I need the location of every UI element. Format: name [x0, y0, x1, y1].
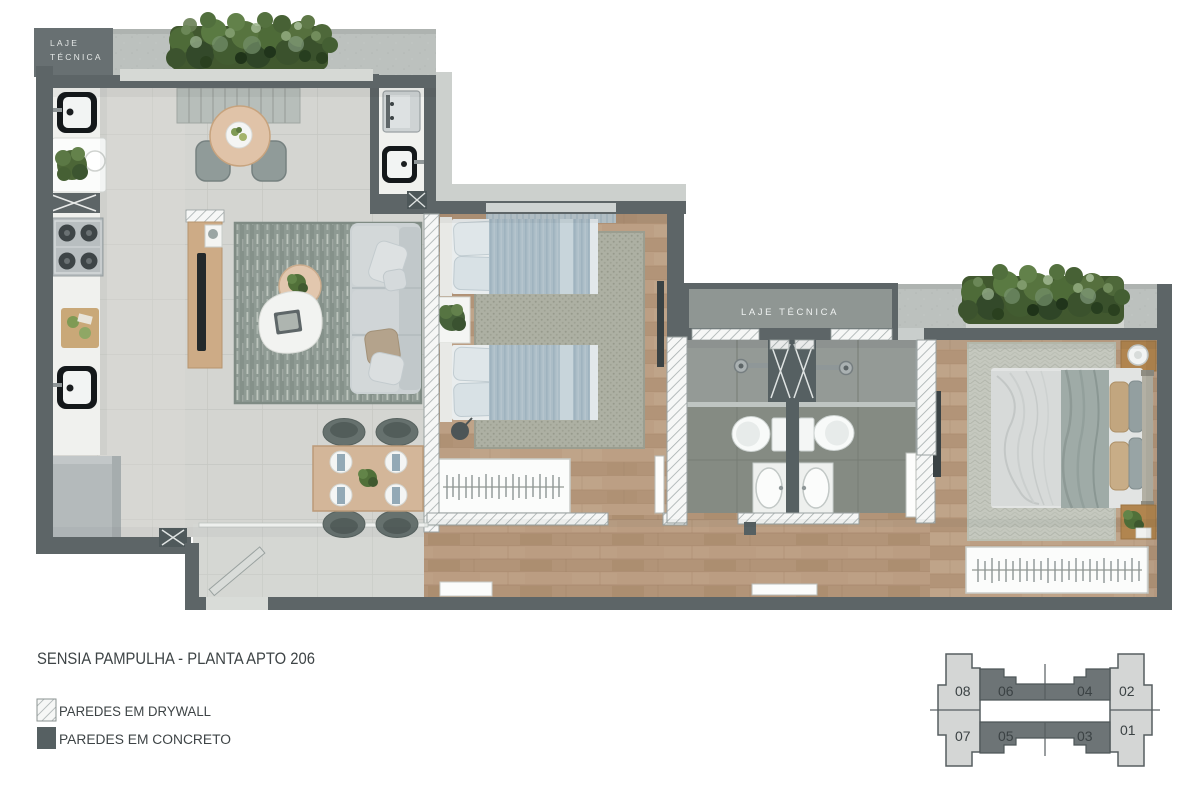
svg-text:04: 04 [1077, 683, 1093, 699]
svg-text:03: 03 [1077, 728, 1093, 744]
svg-text:SENSIA PAMPULHA - PLANTA APTO: SENSIA PAMPULHA - PLANTA APTO 206 [37, 650, 315, 668]
svg-text:LAJE: LAJE [50, 38, 79, 48]
svg-text:07: 07 [955, 728, 971, 744]
svg-text:02: 02 [1119, 683, 1135, 699]
svg-text:01: 01 [1120, 722, 1136, 738]
svg-text:LAJE TÉCNICA: LAJE TÉCNICA [741, 307, 839, 318]
svg-text:PAREDES EM DRYWALL: PAREDES EM DRYWALL [59, 704, 211, 719]
svg-text:08: 08 [955, 683, 971, 699]
svg-text:TÉCNICA: TÉCNICA [50, 52, 103, 62]
svg-text:05: 05 [998, 728, 1014, 744]
svg-text:06: 06 [998, 683, 1014, 699]
svg-text:PAREDES EM CONCRETO: PAREDES EM CONCRETO [59, 732, 231, 747]
